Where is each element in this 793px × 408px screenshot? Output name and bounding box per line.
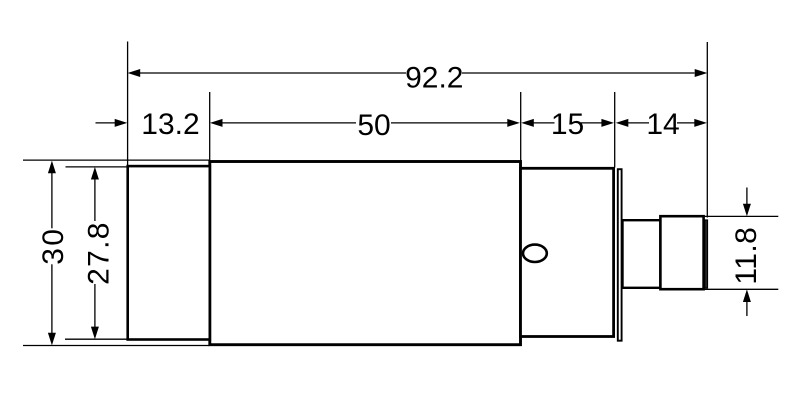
svg-text:50: 50 <box>357 109 390 142</box>
svg-text:14: 14 <box>646 108 679 141</box>
svg-text:15: 15 <box>551 108 584 141</box>
svg-text:27.8: 27.8 <box>82 221 115 285</box>
svg-text:30: 30 <box>37 227 70 265</box>
svg-text:11.8: 11.8 <box>730 227 763 285</box>
svg-text:13.2: 13.2 <box>141 108 199 141</box>
svg-text:92.2: 92.2 <box>405 62 463 95</box>
